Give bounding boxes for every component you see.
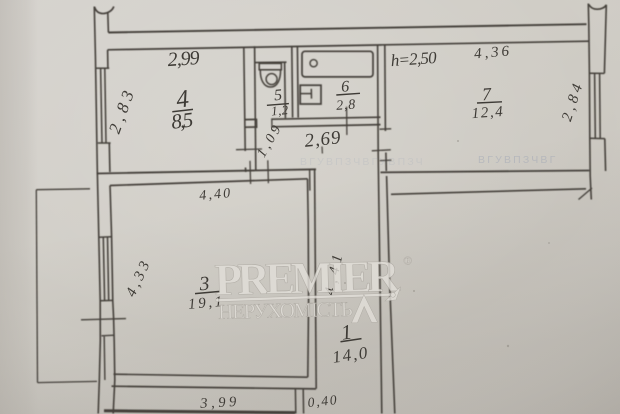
- svg-text:4,40: 4,40: [199, 186, 231, 204]
- svg-text:2,99: 2,99: [167, 47, 200, 71]
- svg-text:®: ®: [403, 253, 412, 267]
- svg-text:2,69: 2,69: [303, 127, 341, 152]
- svg-text:0,40: 0,40: [307, 392, 338, 410]
- svg-text:ВГУВПЗЧВГУВПЗЧ: ВГУВПЗЧВГУВПЗЧ: [300, 156, 425, 168]
- svg-text:3,99: 3,99: [199, 394, 238, 412]
- svg-text:6: 6: [341, 78, 350, 96]
- svg-text:12,4: 12,4: [471, 104, 504, 122]
- svg-text:4,36: 4,36: [473, 43, 510, 62]
- svg-text:1,2: 1,2: [270, 102, 289, 118]
- svg-text:8,5: 8,5: [170, 107, 195, 134]
- svg-text:h=2,50: h=2,50: [390, 48, 438, 70]
- svg-text:2,8: 2,8: [336, 98, 356, 114]
- svg-text:НЕРУХОМІСТЬ: НЕРУХОМІСТЬ: [218, 297, 355, 324]
- svg-text:ВГУВПЗЧВГ: ВГУВПЗЧВГ: [478, 154, 558, 166]
